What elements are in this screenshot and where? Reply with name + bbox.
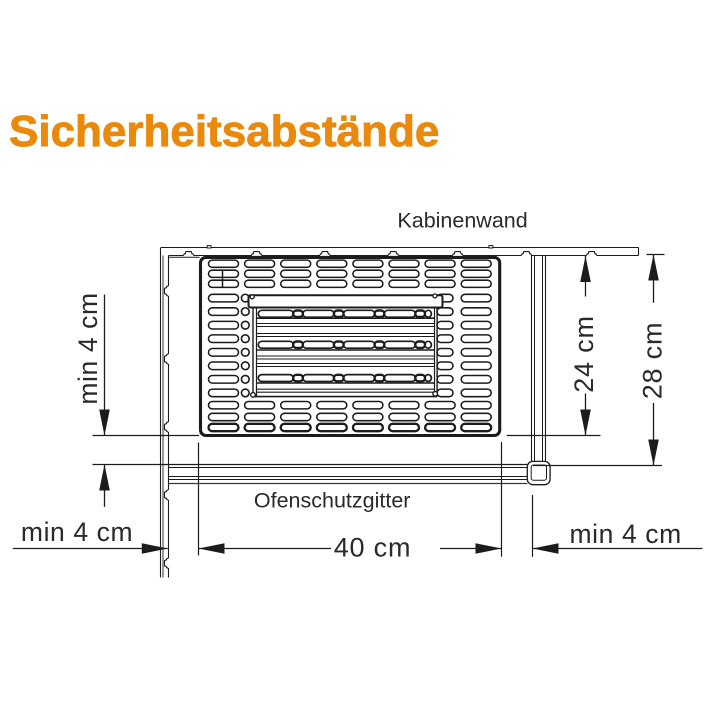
- svg-text:28 cm: 28 cm: [637, 322, 667, 400]
- svg-text:min 4 cm: min 4 cm: [21, 517, 133, 547]
- svg-text:min 4 cm: min 4 cm: [570, 519, 682, 549]
- svg-text:min 4 cm: min 4 cm: [73, 292, 103, 404]
- svg-text:24 cm: 24 cm: [569, 315, 599, 393]
- svg-text:Sicherheitsabstände: Sicherheitsabstände: [9, 107, 439, 156]
- svg-text:40 cm: 40 cm: [334, 533, 412, 563]
- svg-text:Ofenschutzgitter: Ofenschutzgitter: [254, 488, 411, 512]
- svg-text:Kabinenwand: Kabinenwand: [397, 209, 527, 233]
